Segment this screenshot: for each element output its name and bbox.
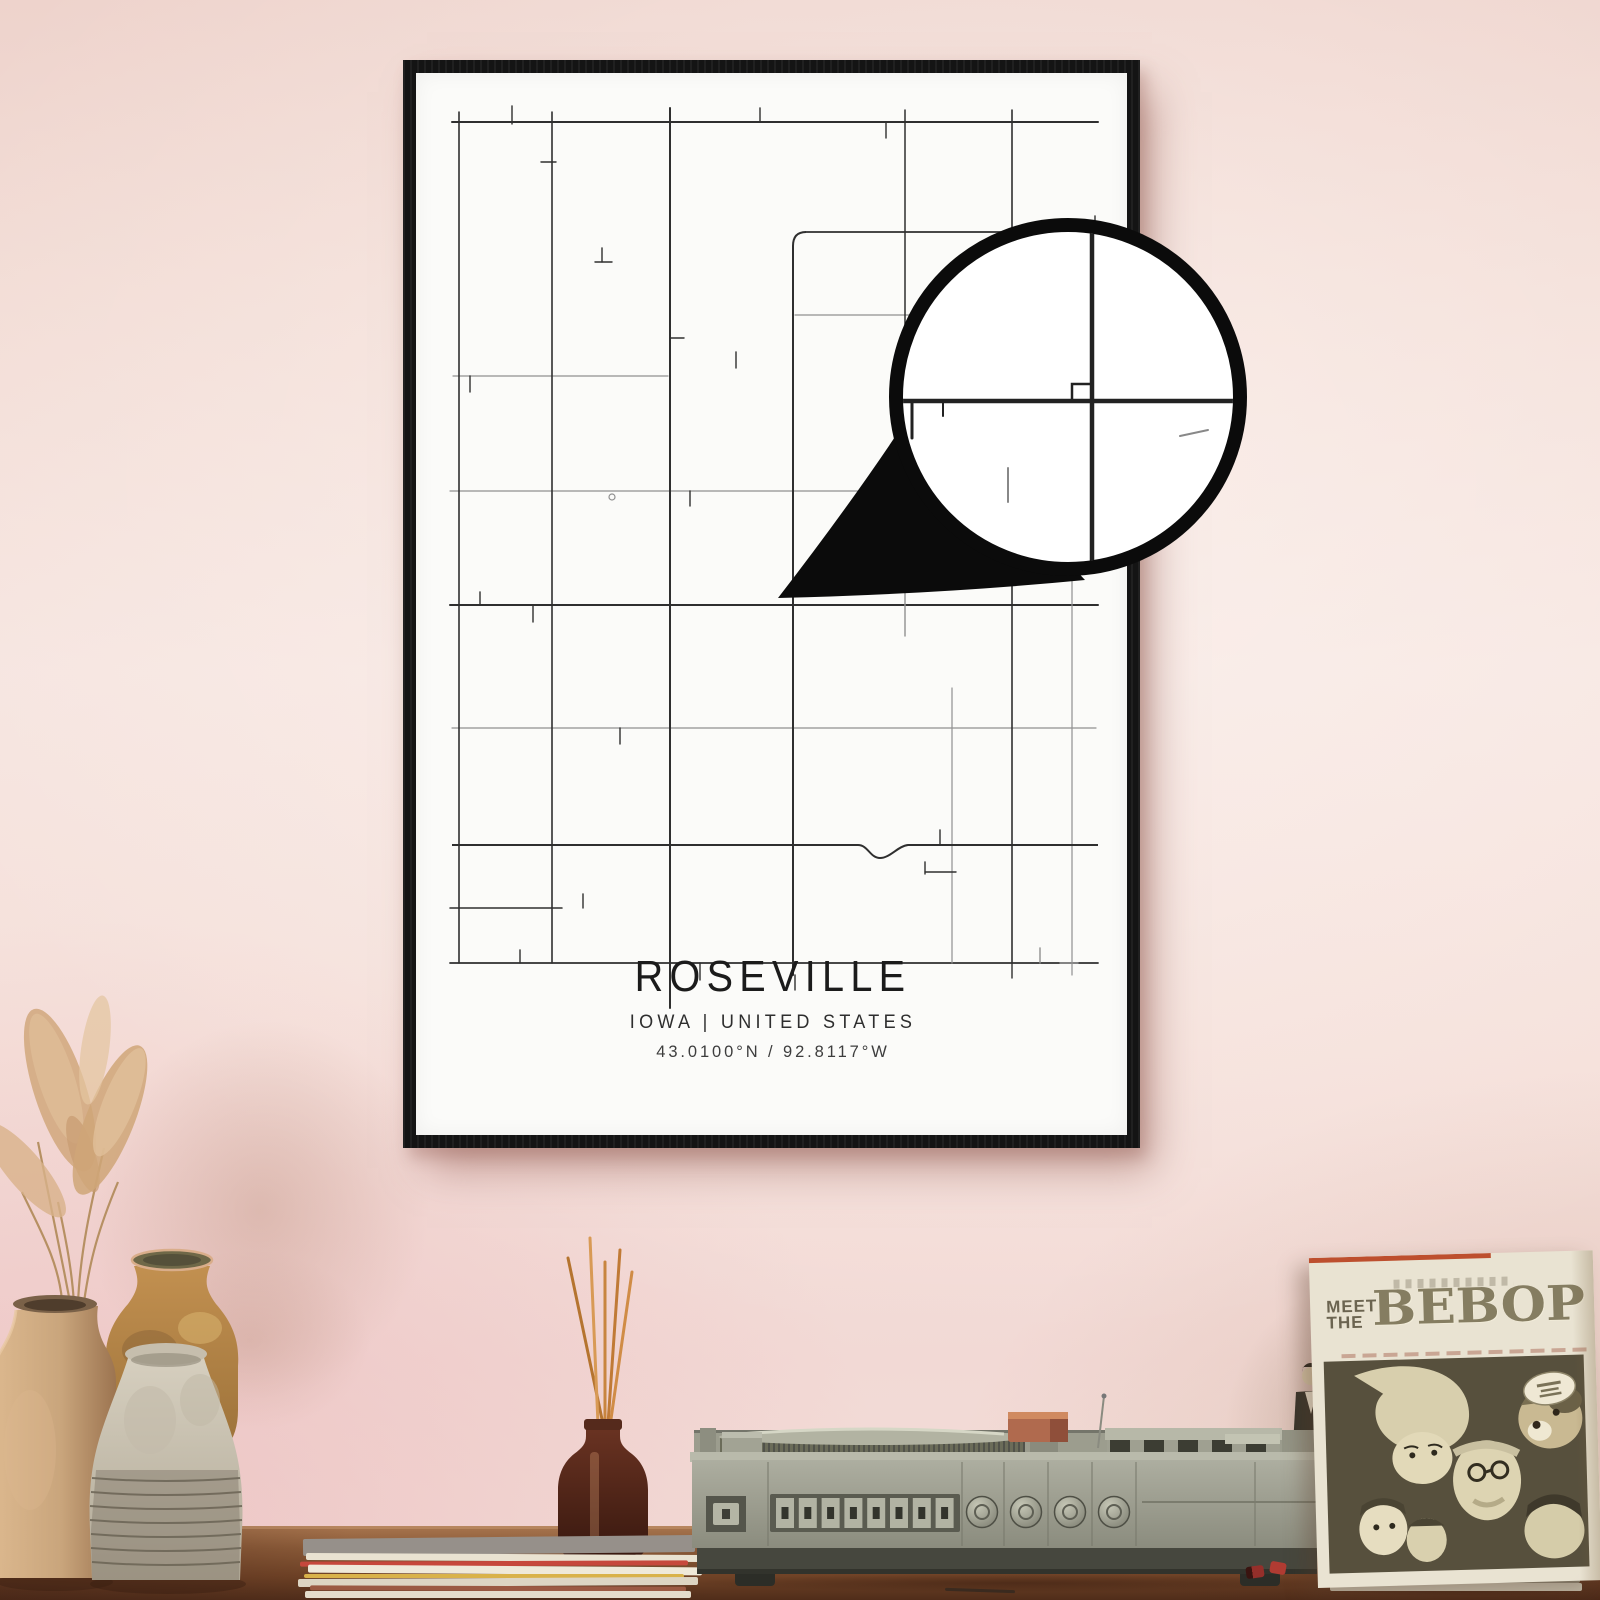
- room-scene: ROSEVILLE IOWA | UNITED STATES 43.0100°N…: [0, 0, 1600, 1600]
- poster-title: ROSEVILLE: [455, 952, 1090, 1002]
- rotary-knob: [967, 1497, 998, 1528]
- sleeve-word-the: THE: [1326, 1314, 1378, 1332]
- magnified-road-stub: [1180, 430, 1208, 436]
- sleeve-art: [1324, 1354, 1590, 1573]
- rotary-knob: [1055, 1497, 1086, 1528]
- poster-coordinates: 43.0100°N / 92.8117°W: [431, 1042, 1116, 1062]
- red-trinket: [1245, 1565, 1264, 1579]
- power-button: [706, 1496, 746, 1532]
- sleeve-top-edge: [1309, 1253, 1491, 1263]
- red-trinket: [1269, 1561, 1287, 1576]
- push-button-center: [804, 1507, 811, 1519]
- sleeve-meet-the: MEET THE: [1326, 1298, 1378, 1332]
- rotary-knob: [1099, 1497, 1130, 1528]
- poster-subtitle: IOWA | UNITED STATES: [438, 1012, 1109, 1034]
- incense-reeds: [568, 1238, 632, 1426]
- sleeve-title: BEBOP: [1371, 1275, 1585, 1337]
- incense-diffuser: [200, 1220, 760, 1600]
- push-button-center: [850, 1507, 857, 1519]
- push-button-center: [941, 1507, 948, 1519]
- record-sleeve: MEET THE BEBOP: [1309, 1250, 1600, 1588]
- tonearm-rest: [700, 1428, 716, 1454]
- incense-bottle: [558, 1419, 648, 1560]
- push-button-center: [918, 1507, 925, 1519]
- preset-button-recess: [770, 1494, 960, 1532]
- player-base: [697, 1545, 1317, 1573]
- push-button-center: [782, 1507, 789, 1519]
- push-button-center: [896, 1507, 903, 1519]
- poster-caption: ROSEVILLE IOWA | UNITED STATES 43.0100°N…: [420, 952, 1126, 1062]
- rotary-knob: [1011, 1497, 1042, 1528]
- push-button-center: [873, 1507, 880, 1519]
- push-button-center: [827, 1507, 834, 1519]
- record-player: [680, 1380, 1340, 1600]
- antenna-tip: [1102, 1394, 1107, 1399]
